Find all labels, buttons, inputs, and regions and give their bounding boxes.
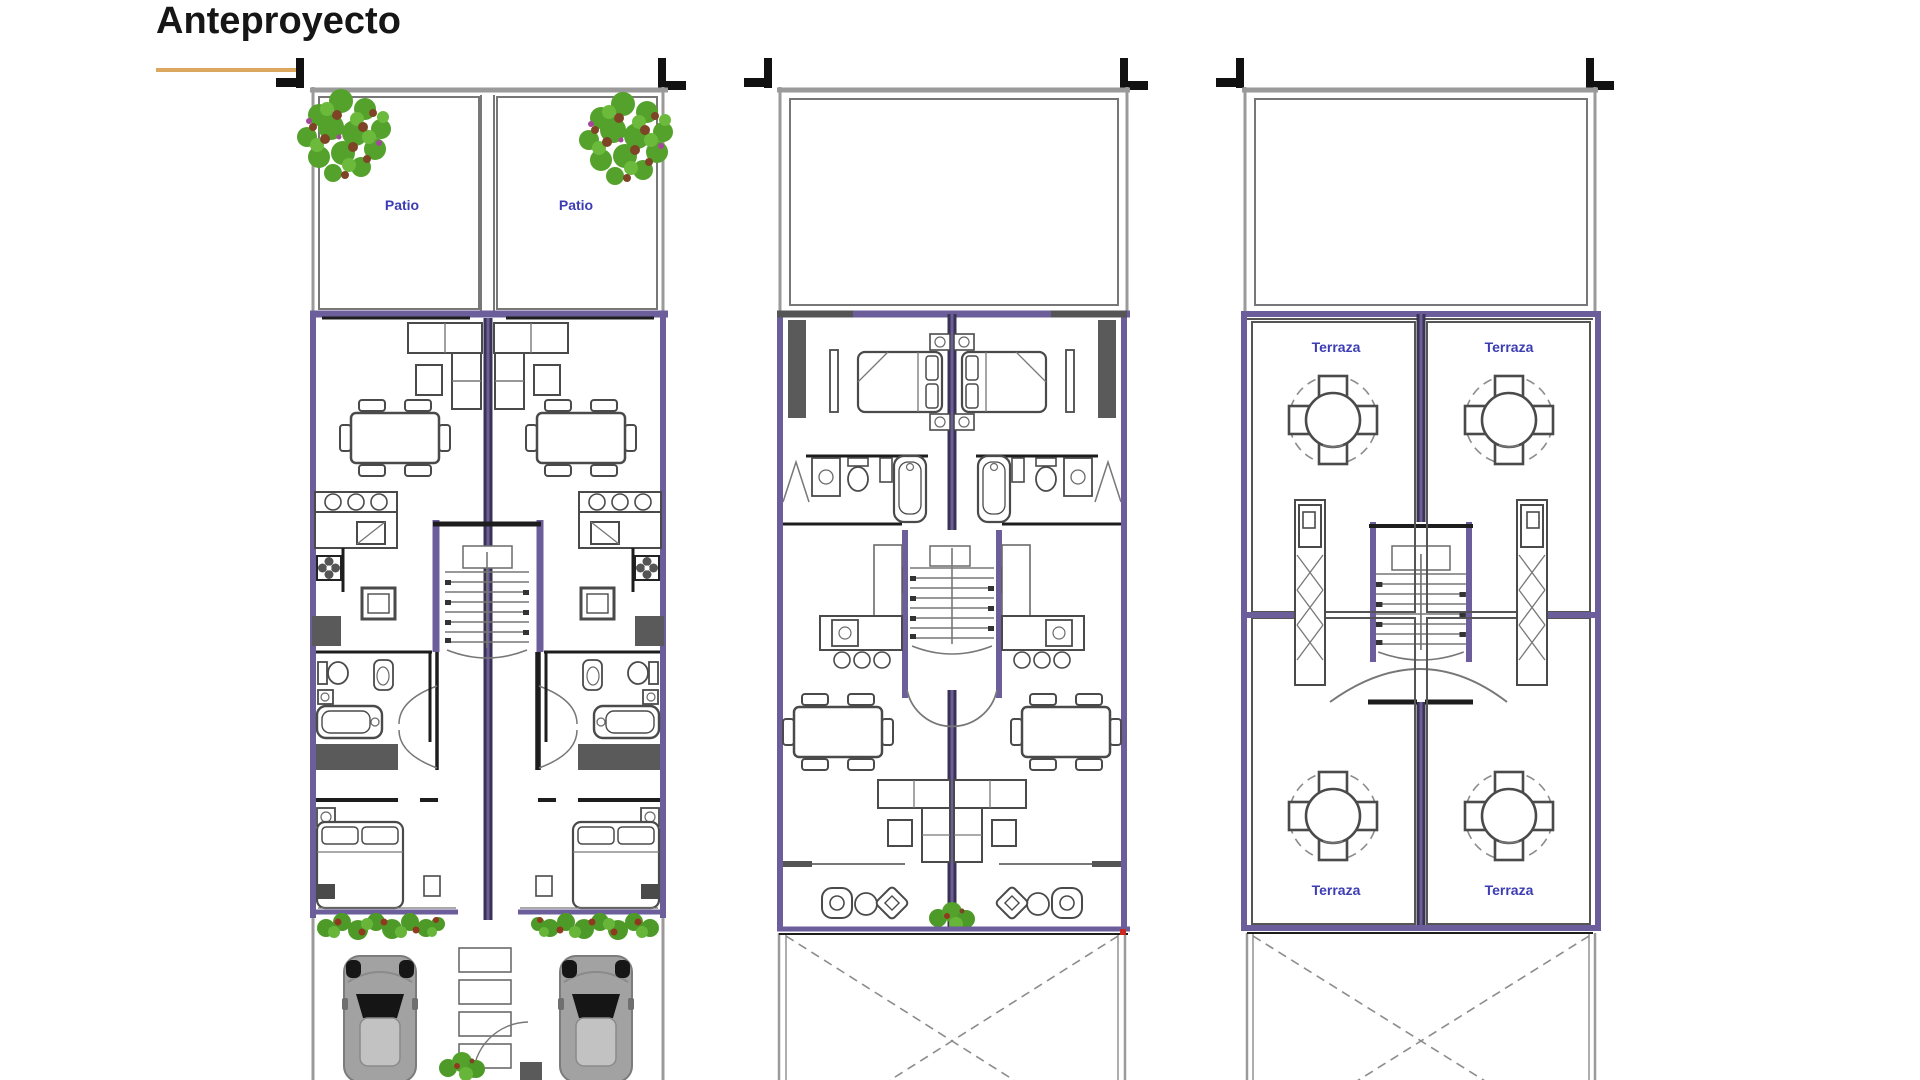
stairs-icon: [445, 552, 529, 658]
crop-mark-icon: [658, 58, 686, 90]
ground-unit-right: [494, 97, 664, 1080]
stairs-core: [1369, 522, 1473, 662]
crop-mark-icon: [1586, 58, 1614, 90]
roof-half-left: [1242, 311, 1415, 1080]
crop-mark-icon: [276, 58, 304, 88]
roof-half-right: [1427, 311, 1600, 1080]
drawing-sheet: Anteproyecto: [0, 0, 1920, 1080]
stairs-icon: [1376, 554, 1466, 660]
upper-floor-plan: [777, 87, 1130, 1080]
void-cross: [786, 936, 1118, 1080]
room-label-patio-left: Patio: [385, 197, 419, 213]
stairs-icon: [910, 548, 994, 654]
crop-mark-icon: [1120, 58, 1148, 90]
crop-mark-icon: [744, 58, 772, 88]
void-cross: [1253, 936, 1589, 1080]
tree-icon: [579, 92, 673, 185]
ground-floor-plan: Patio Patio: [297, 87, 673, 1080]
cad-marker-dot: [1120, 929, 1126, 935]
upper-unit-left: [777, 311, 950, 1080]
room-label-terraza-bottom-left: Terraza: [1312, 882, 1361, 898]
room-label-terraza-bottom-right: Terraza: [1485, 882, 1534, 898]
room-label-terraza-top-left: Terraza: [1312, 339, 1361, 355]
tree-icon: [297, 89, 391, 182]
ground-unit-left: [312, 97, 482, 1080]
floorplan-canvas: Patio Patio: [0, 0, 1920, 1080]
room-label-terraza-top-right: Terraza: [1485, 339, 1534, 355]
roof-access-door: [1330, 669, 1507, 702]
crop-marks: [276, 58, 1614, 90]
upper-unit-right: [954, 311, 1127, 1080]
bin-icon: [520, 1062, 542, 1080]
room-label-patio-right: Patio: [559, 197, 593, 213]
roof-plan: Terraza Terraza Terraza Terraza: [1242, 87, 1600, 1080]
crop-mark-icon: [1216, 58, 1244, 88]
